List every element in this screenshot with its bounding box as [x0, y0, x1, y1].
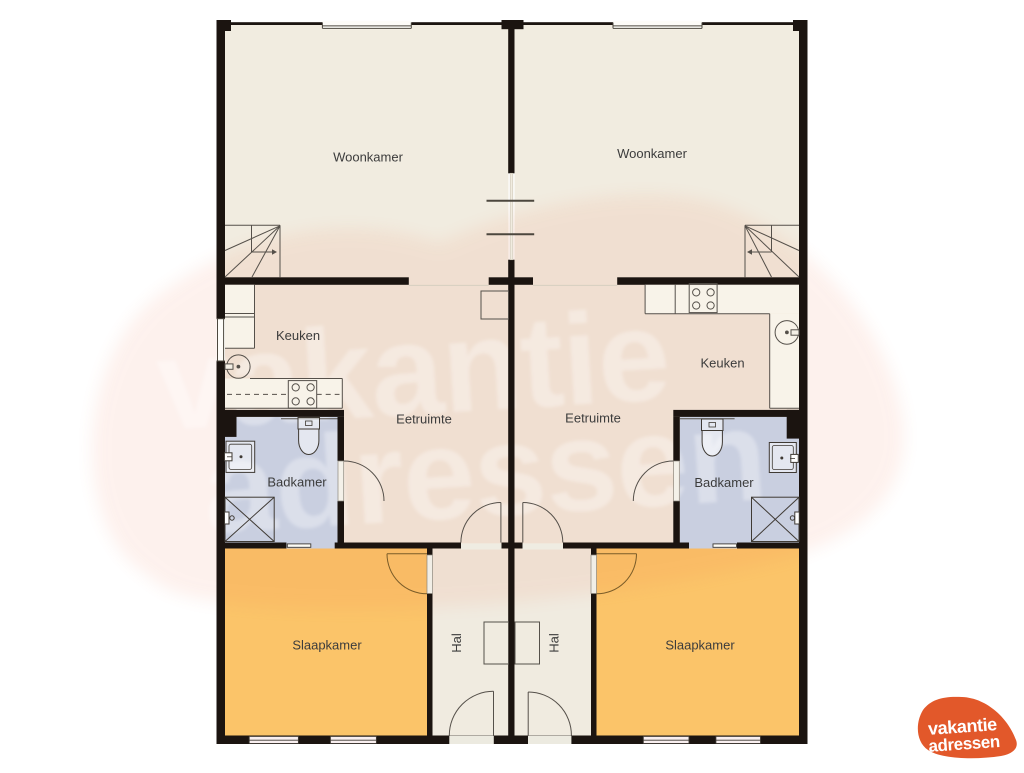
svg-text:Badkamer: Badkamer [694, 475, 754, 490]
svg-text:Woonkamer: Woonkamer [617, 146, 688, 161]
svg-text:Hal: Hal [449, 633, 464, 653]
svg-text:Hal: Hal [546, 633, 561, 653]
svg-text:Slaapkamer: Slaapkamer [292, 638, 362, 653]
svg-text:Eetruimte: Eetruimte [396, 412, 452, 427]
svg-text:Keuken: Keuken [276, 328, 320, 343]
svg-text:Keuken: Keuken [700, 356, 744, 371]
svg-text:Woonkamer: Woonkamer [333, 150, 404, 165]
svg-text:Eetruimte: Eetruimte [565, 411, 621, 426]
svg-text:Slaapkamer: Slaapkamer [665, 638, 735, 653]
svg-text:Badkamer: Badkamer [267, 475, 327, 490]
